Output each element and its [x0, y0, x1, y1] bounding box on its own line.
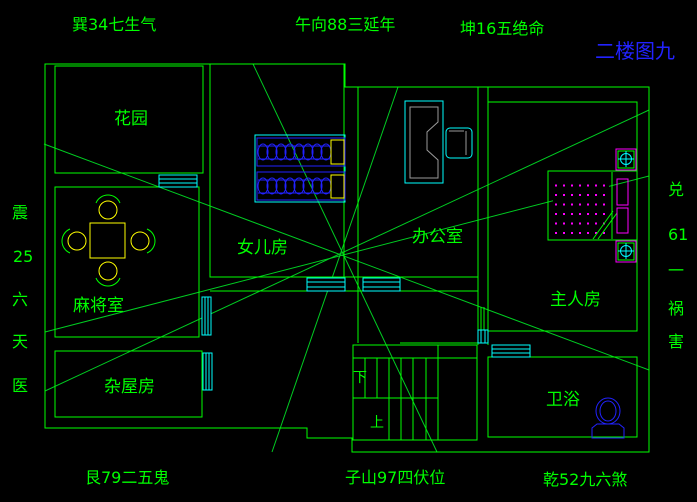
- ray-northeast-southwest: [45, 110, 649, 391]
- master-room-label: 主人房: [550, 290, 601, 310]
- office-chair-back: [449, 131, 466, 155]
- mahjong-window: [202, 297, 211, 335]
- compass-labels: 巽34七生气 午向88三延年 坤16五绝命 艮79二五鬼 子山97四伏位 乾52…: [12, 15, 688, 489]
- nightstand-top: [616, 149, 636, 170]
- mahjong-table-set: [62, 195, 155, 286]
- office-walls: [358, 87, 488, 345]
- chair-bottom-back: [96, 278, 120, 286]
- chair-top-back: [96, 195, 120, 203]
- stair-treads-lower: [389, 398, 426, 440]
- chair-left: [68, 232, 86, 250]
- corridor-window-left: [307, 278, 345, 291]
- nightstand-bottom: [616, 241, 636, 262]
- stair-up-label: 上: [370, 415, 384, 431]
- floor-plan-canvas: 下 上: [0, 0, 697, 502]
- office-label: 办公室: [412, 227, 463, 247]
- chair-top: [99, 201, 117, 219]
- bed-lower-pillow: [331, 175, 344, 198]
- drawing-title: 二楼图九: [595, 39, 675, 63]
- staircase: 下 上: [353, 345, 477, 440]
- chair-left-back: [62, 229, 70, 253]
- desk-surface: [410, 107, 438, 178]
- desk-outline: [405, 101, 443, 183]
- pillow-right: [617, 208, 628, 233]
- toilet: [592, 398, 624, 438]
- bathroom-window: [492, 345, 530, 357]
- compass-right-char: 祸: [668, 299, 684, 318]
- compass-bottom-center: 子山97四伏位: [345, 468, 445, 487]
- storage-room-label: 杂屋房: [104, 377, 155, 397]
- toilet-bowl-inner: [600, 401, 616, 421]
- compass-top-left: 巽34七生气: [72, 15, 156, 34]
- twin-beds: [255, 135, 345, 202]
- ray-facing-axis: [253, 64, 437, 452]
- storage-window: [203, 353, 212, 390]
- compass-right-char: 一: [668, 261, 684, 280]
- stair-down-label: 下: [353, 370, 367, 386]
- compass-top-center: 午向88三延年: [295, 15, 395, 34]
- compass-bottom-right: 乾52九六煞: [543, 470, 627, 489]
- compass-left-char: 震: [12, 203, 28, 222]
- bed-upper-pillow: [331, 140, 344, 164]
- chair-right-back: [147, 229, 155, 253]
- chair-bottom: [99, 262, 117, 280]
- compass-left-char: 六: [12, 290, 28, 309]
- corridor-window-right: [363, 278, 400, 291]
- compass-left-char: 医: [12, 376, 28, 395]
- compass-left-column: 震 25 六 天 医: [12, 203, 33, 395]
- mahjong-room-label: 麻将室: [73, 296, 124, 316]
- compass-right-char: 害: [668, 332, 684, 351]
- master-bed-mattress: [553, 177, 609, 234]
- garden-label: 花园: [114, 109, 148, 129]
- office-chair: [446, 128, 472, 158]
- compass-bottom-left: 艮79二五鬼: [85, 468, 169, 487]
- bed-lower: [257, 172, 345, 200]
- mahjong-table: [90, 223, 125, 258]
- office-desk-set: [405, 101, 472, 183]
- garden-window: [159, 175, 197, 187]
- bathroom-label: 卫浴: [546, 390, 580, 410]
- compass-left-char: 25: [13, 247, 33, 266]
- compass-left-char: 天: [12, 332, 28, 351]
- compass-top-right: 坤16五绝命: [460, 19, 544, 38]
- compass-right-char: 61: [668, 225, 688, 244]
- compass-right-column: 兑 61 一 祸 害: [668, 180, 688, 351]
- chair-right: [131, 232, 149, 250]
- daughter-room-label: 女儿房: [237, 238, 288, 258]
- room-labels: 花园 女儿房 办公室 麻将室 主人房 杂屋房 卫浴: [73, 109, 601, 410]
- compass-right-char: 兑: [668, 180, 684, 199]
- master-bed-set: [548, 149, 637, 262]
- floor-plan-drawing: 下 上: [0, 0, 697, 502]
- toilet-tank: [592, 424, 624, 438]
- hall-window: [478, 330, 488, 343]
- bed-upper: [257, 138, 345, 166]
- hall-door-lines: [481, 307, 484, 330]
